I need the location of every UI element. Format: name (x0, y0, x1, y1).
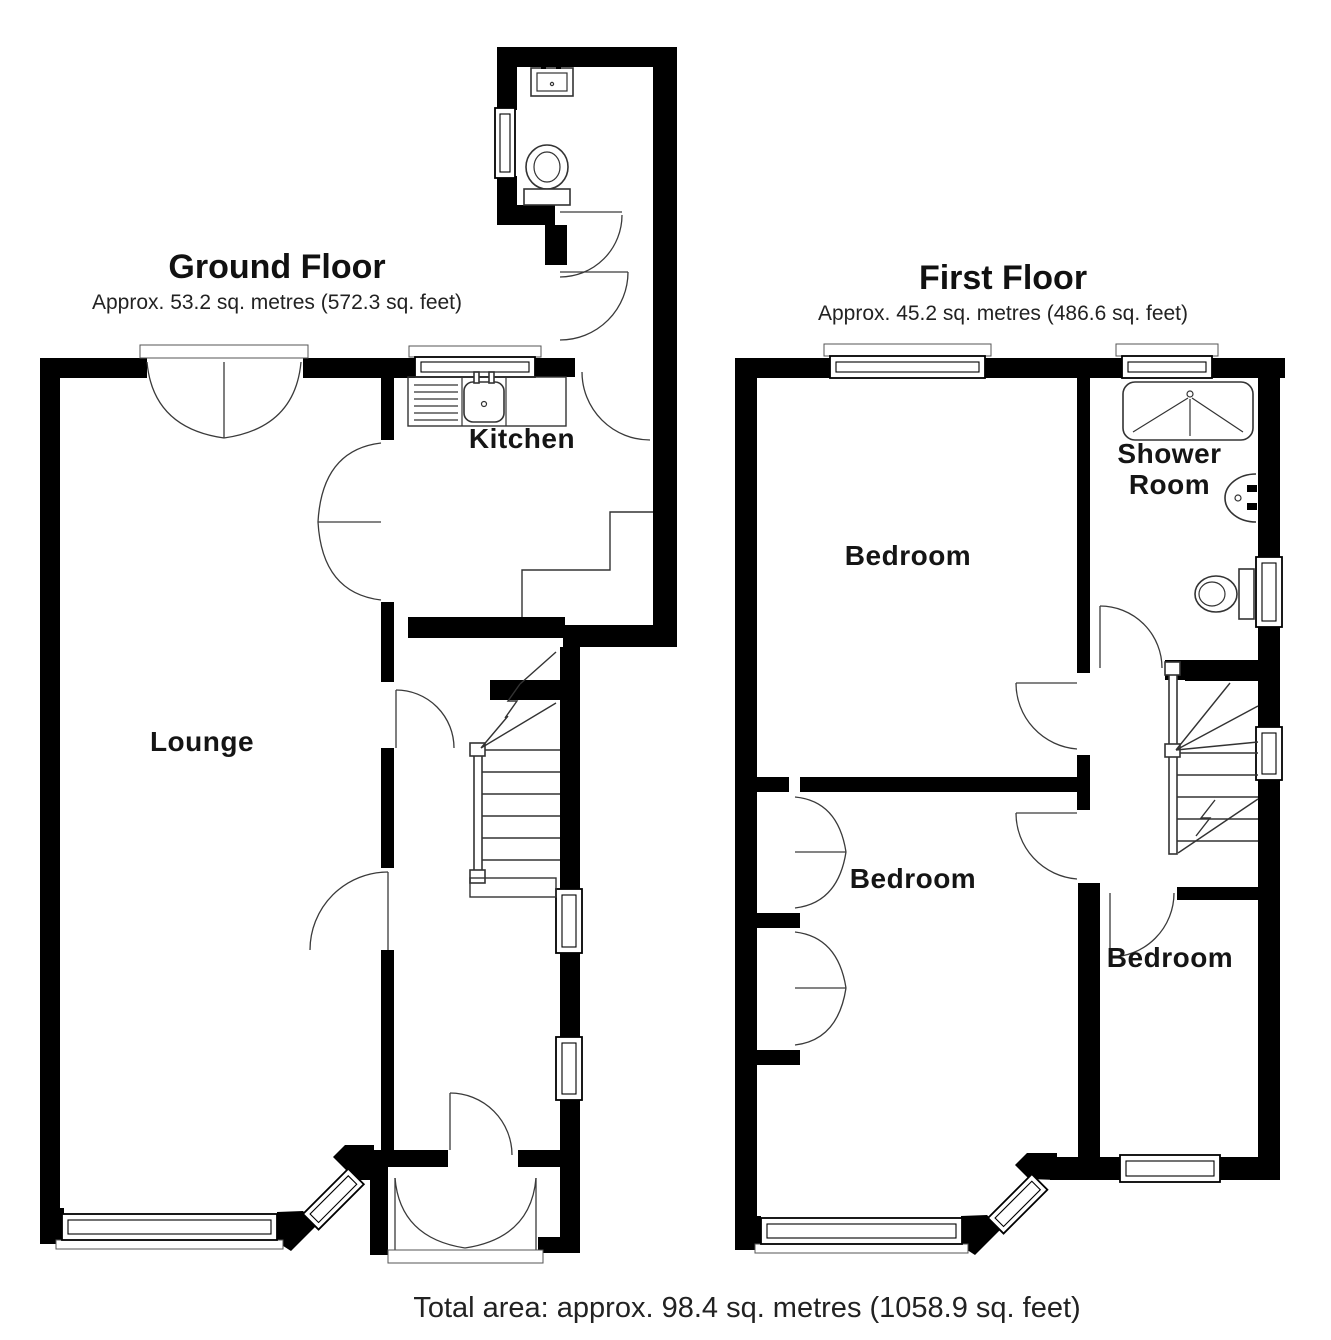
bedroom-top-window (824, 344, 991, 378)
room-label-lounge: Lounge (102, 726, 302, 758)
hall-door (396, 690, 454, 748)
bedroom-top-door (1016, 683, 1077, 749)
first-floor-area: Approx. 45.2 sq. metres (486.6 sq. feet) (803, 302, 1203, 326)
shower-room-top-window (1116, 344, 1218, 378)
shower-room-side-window (1256, 557, 1282, 627)
floorplan-drawing (0, 0, 1331, 1340)
room-label-bedroom-right: Bedroom (1070, 942, 1270, 974)
shower-tray-icon (1123, 382, 1253, 440)
staircase-first (1165, 662, 1258, 854)
landing-window (1256, 727, 1282, 780)
hall-window-upper (556, 889, 582, 953)
room-label-bedroom-middle: Bedroom (813, 863, 1013, 895)
ground-floor-plan (40, 47, 677, 1263)
floorplan-page: Ground Floor Approx. 53.2 sq. metres (57… (0, 0, 1331, 1340)
room-label-kitchen: Kitchen (422, 423, 622, 455)
wc-window (495, 108, 515, 178)
stair-void-line (522, 512, 653, 617)
ground-floor-title: Ground Floor (77, 248, 477, 287)
wc-door (560, 212, 622, 277)
front-door (450, 1093, 512, 1155)
room-label-shower-room: Shower Room (1082, 438, 1257, 500)
lounge-patio-sill (140, 345, 308, 358)
ground-floor-area: Approx. 53.2 sq. metres (572.3 sq. feet) (77, 291, 477, 315)
lounge-patio-doors (147, 362, 301, 438)
bedroom-middle-bay-window (755, 1174, 1047, 1253)
lounge-door (310, 872, 388, 950)
wc-toilet-icon (524, 145, 570, 205)
lounge-kitchen-double-doors (318, 443, 381, 600)
shower-room-door (1100, 606, 1162, 668)
total-area-text: Total area: approx. 98.4 sq. metres (105… (387, 1292, 1107, 1325)
lounge-bay-window (56, 1169, 364, 1249)
bedroom-right-window (1120, 1155, 1220, 1182)
wardrobe-doors-lower (795, 932, 846, 1045)
lobby-door (560, 272, 628, 340)
toilet-icon (1195, 569, 1254, 619)
hall-window-lower (556, 1037, 582, 1100)
kitchen-counter (408, 372, 566, 426)
first-floor-title-block: First Floor Approx. 45.2 sq. metres (486… (803, 259, 1203, 326)
kitchen-sink-icon (464, 372, 504, 422)
ground-floor-title-block: Ground Floor Approx. 53.2 sq. metres (57… (77, 248, 477, 315)
porch-double-doors (388, 1178, 543, 1263)
first-floor-title: First Floor (803, 259, 1203, 298)
room-label-bedroom-top: Bedroom (808, 540, 1008, 572)
drainer-icon (414, 385, 458, 420)
bedroom-middle-door (1016, 813, 1077, 879)
